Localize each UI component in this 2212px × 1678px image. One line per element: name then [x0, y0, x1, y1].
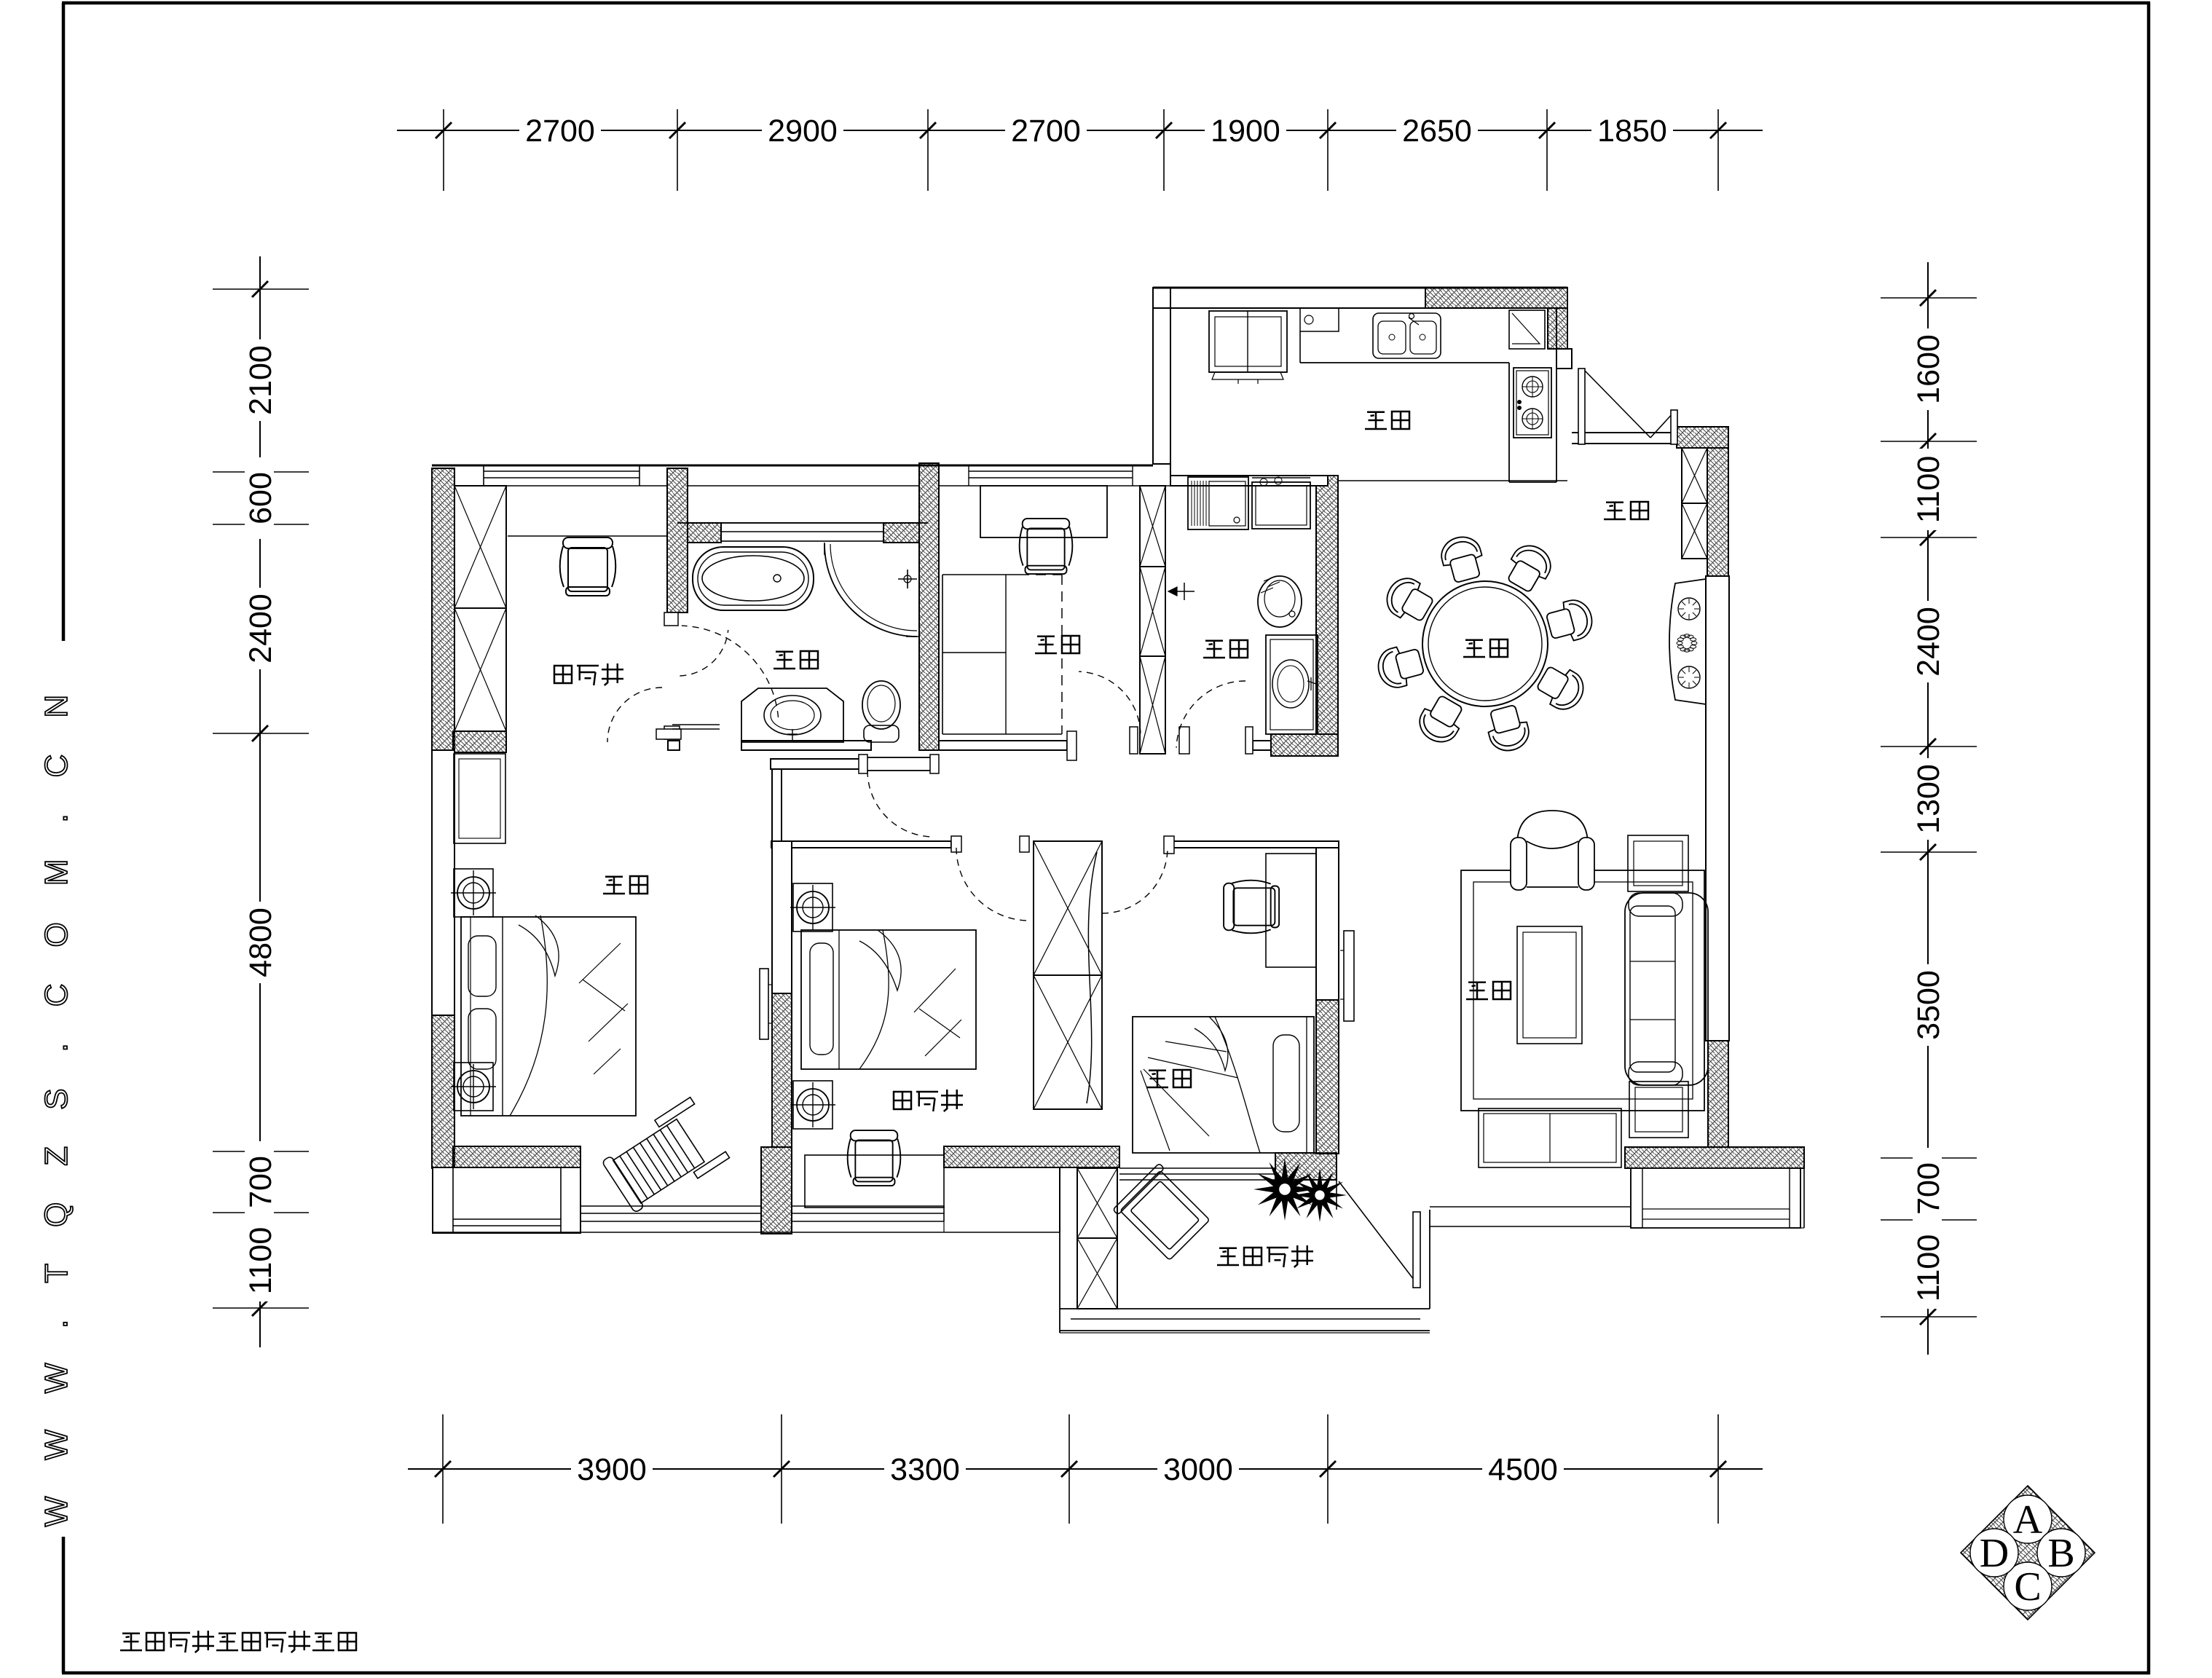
svg-text:3500: 3500: [1911, 970, 1946, 1040]
svg-text:1600: 1600: [1911, 334, 1946, 404]
svg-text:3300: 3300: [890, 1452, 960, 1487]
svg-text:1900: 1900: [1211, 114, 1280, 149]
svg-text:4500: 4500: [1488, 1452, 1558, 1487]
svg-text:4800: 4800: [243, 907, 278, 977]
svg-text:600: 600: [243, 472, 278, 524]
svg-text:2400: 2400: [243, 594, 278, 663]
svg-text:B: B: [2047, 1531, 2074, 1576]
svg-text:1100: 1100: [1911, 1234, 1946, 1301]
svg-text:A: A: [2013, 1497, 2043, 1543]
svg-text:2700: 2700: [1011, 114, 1081, 149]
svg-text:2700: 2700: [525, 114, 595, 149]
svg-text:1100: 1100: [1911, 456, 1946, 523]
svg-text:700: 700: [1911, 1162, 1946, 1215]
svg-text:3000: 3000: [1163, 1452, 1233, 1487]
svg-text:1850: 1850: [1597, 114, 1667, 149]
svg-text:1100: 1100: [243, 1227, 278, 1294]
svg-text:2900: 2900: [768, 114, 838, 149]
svg-text:1300: 1300: [1911, 764, 1946, 834]
svg-text:700: 700: [243, 1156, 278, 1208]
svg-text:WWW.TQZS.COM.CN: WWW.TQZS.COM.CN: [39, 658, 74, 1527]
svg-text:2100: 2100: [243, 345, 278, 415]
svg-text:D: D: [1980, 1531, 2009, 1576]
svg-text:2650: 2650: [1402, 114, 1472, 149]
svg-text:2400: 2400: [1911, 607, 1946, 677]
svg-text:C: C: [2014, 1564, 2041, 1610]
svg-text:3900: 3900: [577, 1452, 647, 1487]
